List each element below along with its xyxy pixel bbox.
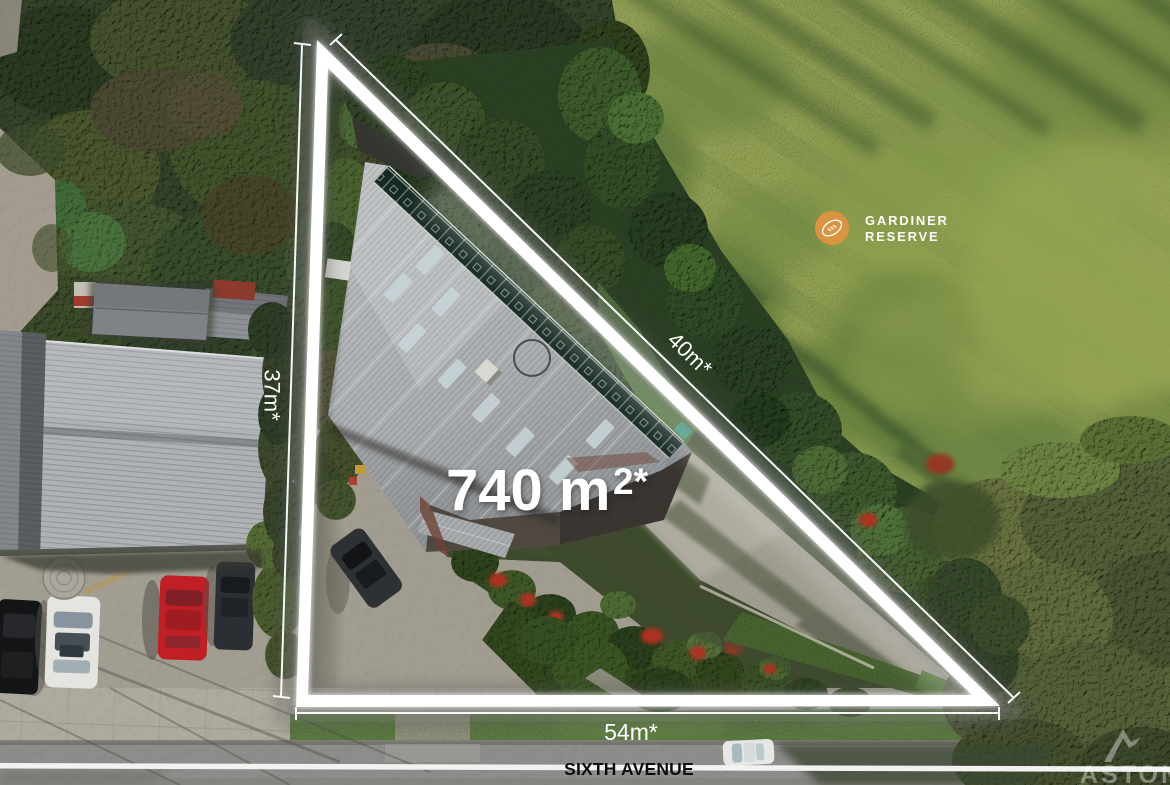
svg-text:740 m: 740 m <box>446 458 610 523</box>
svg-text:RESERVE: RESERVE <box>865 229 940 244</box>
svg-text:2*: 2* <box>613 461 649 502</box>
svg-text:ASTON: ASTON <box>1080 761 1170 785</box>
svg-text:GARDINER: GARDINER <box>865 213 949 228</box>
svg-text:SIXTH AVENUE: SIXTH AVENUE <box>564 759 694 779</box>
svg-text:37m*: 37m* <box>260 369 285 421</box>
svg-text:54m*: 54m* <box>604 719 658 745</box>
